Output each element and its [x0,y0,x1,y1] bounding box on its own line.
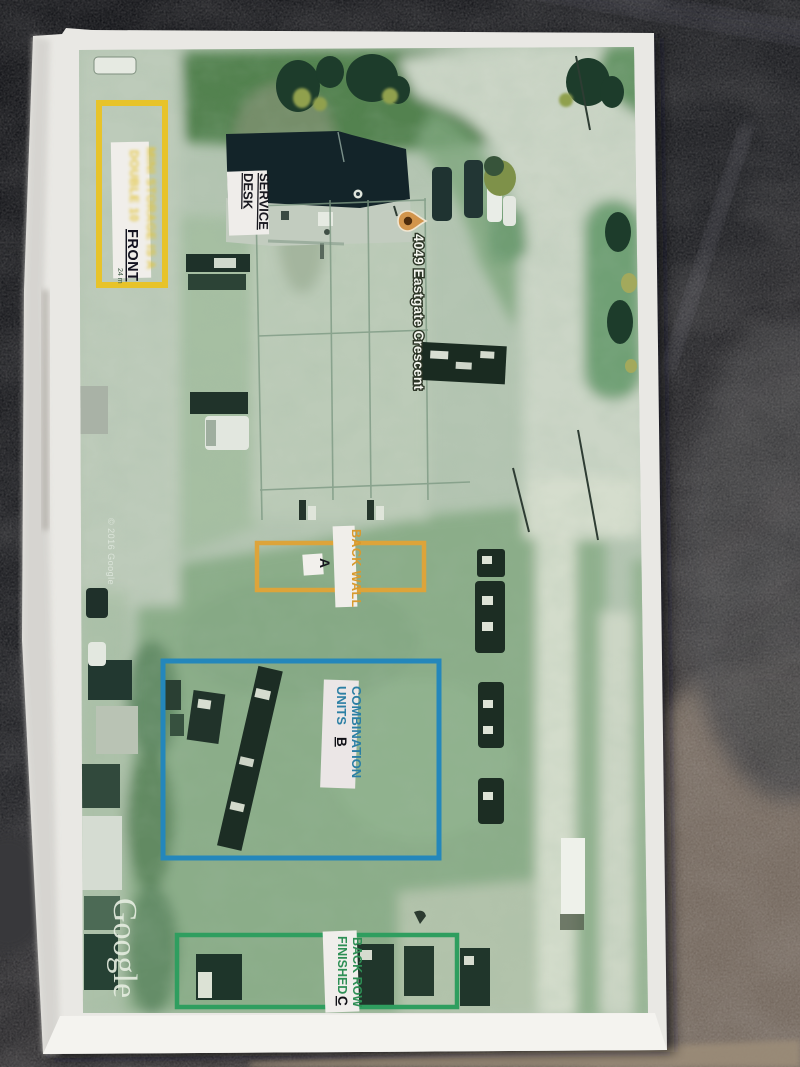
svg-text:FRONT: FRONT [124,229,140,281]
svg-text:© 2016 Google: © 2016 Google [106,518,116,585]
svg-text:SERVICE: SERVICE [256,173,272,230]
svg-text:4049 Eastgate Crescent: 4049 Eastgate Crescent [411,234,426,390]
svg-text:UNITS: UNITS [334,686,349,725]
svg-text:Google: Google [106,898,143,998]
svg-text:BACK WALL: BACK WALL [349,529,363,608]
svg-text:DOUBLE 10: DOUBLE 10 [127,150,141,222]
svg-text:DESK: DESK [240,173,256,210]
svg-text:B: B [334,737,349,747]
svg-text:24 m: 24 m [116,268,123,284]
svg-text:A: A [317,558,333,568]
svg-text:BACK ROW: BACK ROW [350,937,364,1007]
svg-text:COMBINATION: COMBINATION [349,686,364,778]
svg-text:C: C [335,996,350,1006]
svg-text:FINISHED: FINISHED [335,936,349,994]
svg-text:MINI STORAGE IS A: MINI STORAGE IS A [144,147,158,270]
